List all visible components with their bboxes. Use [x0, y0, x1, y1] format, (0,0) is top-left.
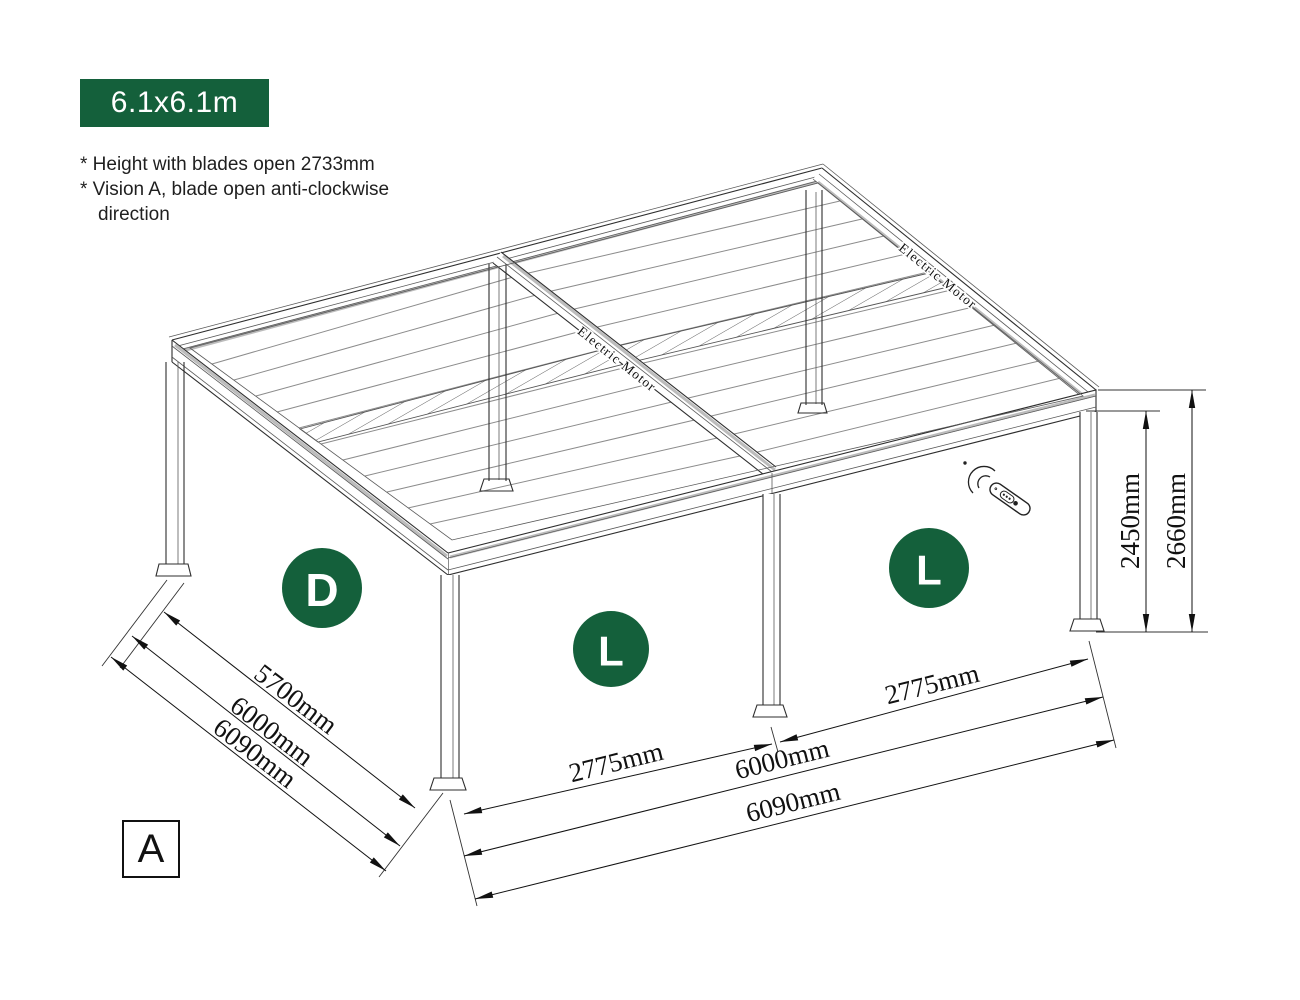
right-corner-post — [1070, 412, 1104, 631]
view-label-box: A — [122, 820, 180, 878]
footnote-vision-wrap: direction — [80, 202, 389, 227]
dimension-group-height: 2450mm 2660mm — [1086, 390, 1208, 632]
pergola-line-drawing: Electric Motor Electric Motor 5700mm 600… — [0, 0, 1300, 1000]
panel-badge-d: D — [282, 548, 362, 628]
svg-text:2775mm: 2775mm — [566, 736, 666, 788]
size-badge: 6.1x6.1m — [80, 79, 269, 127]
view-label: A — [138, 827, 165, 872]
svg-text:2660mm: 2660mm — [1161, 473, 1191, 569]
dimension-front-right-bay: 2775mm — [780, 658, 1088, 742]
pergola-dimension-diagram: Electric Motor Electric Motor 5700mm 600… — [0, 0, 1300, 1000]
footnote-vision: * Vision A, blade open anti-clockwise — [80, 177, 389, 202]
footnote-height: * Height with blades open 2733mm — [80, 152, 389, 177]
roof-fascia-left — [172, 340, 448, 575]
left-corner-post — [156, 362, 191, 576]
svg-text:L: L — [598, 628, 624, 675]
front-middle-post — [753, 494, 787, 717]
panel-badge-l-front: L — [573, 611, 649, 687]
dimension-front-left-bay: 2775mm — [464, 736, 772, 814]
svg-text:L: L — [916, 547, 942, 594]
panel-badge-l-right: L — [889, 528, 969, 608]
dimension-front-inner: 6000mm — [464, 697, 1103, 856]
front-corner-post — [430, 575, 466, 790]
dimension-group-front-width: 2775mm 2775mm 6000mm 6090mm — [450, 641, 1116, 906]
svg-text:D: D — [305, 564, 338, 616]
electric-motor-label-right: Electric Motor — [896, 240, 980, 312]
footnotes: * Height with blades open 2733mm * Visio… — [80, 152, 389, 227]
dimension-overall-height: 2660mm — [1161, 390, 1192, 632]
svg-text:2775mm: 2775mm — [882, 658, 982, 710]
svg-text:2450mm: 2450mm — [1115, 473, 1145, 569]
remote-control-icon — [963, 461, 1032, 517]
dimension-post-height: 2450mm — [1115, 411, 1146, 632]
